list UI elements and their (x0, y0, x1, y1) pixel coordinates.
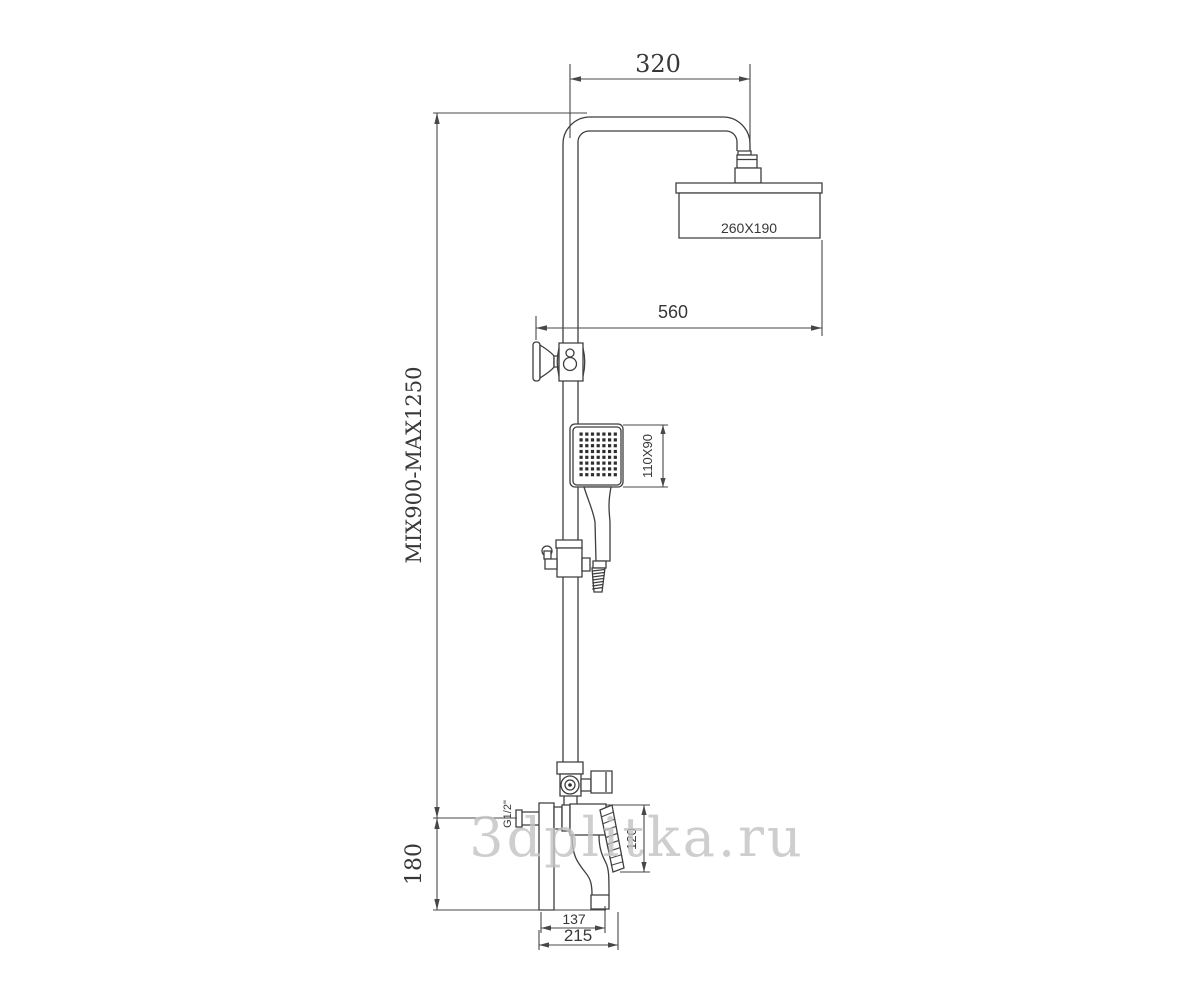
arm-width-label: 320 (635, 50, 681, 78)
mixer-width-label: 215 (564, 926, 592, 945)
watermark: 3dplitka.ru (469, 806, 804, 869)
inlet-height-label: 180 (402, 843, 427, 885)
shower-arm (563, 117, 750, 151)
drawing-page: 260X190 (0, 0, 1200, 1001)
diverter-valve (557, 762, 612, 805)
dimension-arm-width: 320 (570, 50, 750, 150)
spout-aerator (591, 895, 609, 909)
slider-holder (542, 540, 590, 577)
wall-bracket (533, 342, 585, 381)
column-height-label: MIX900-MAX1250 (402, 367, 426, 564)
spout-reach-label: 137 (562, 911, 586, 927)
handshower-size-label: 110X90 (640, 434, 655, 478)
head-size-label: 260X190 (721, 220, 777, 236)
technical-drawing: 260X190 (0, 0, 1200, 1001)
dimension-handshower-size: 110X90 (623, 425, 668, 487)
head-offset-label: 560 (658, 302, 688, 322)
dimension-column-height: MIX900-MAX1250 (402, 113, 587, 818)
rain-shower-head: 260X190 (676, 183, 822, 238)
dimension-head-offset: 560 (536, 240, 822, 340)
hose-connector (592, 561, 606, 592)
shower-head-connector (735, 151, 761, 183)
